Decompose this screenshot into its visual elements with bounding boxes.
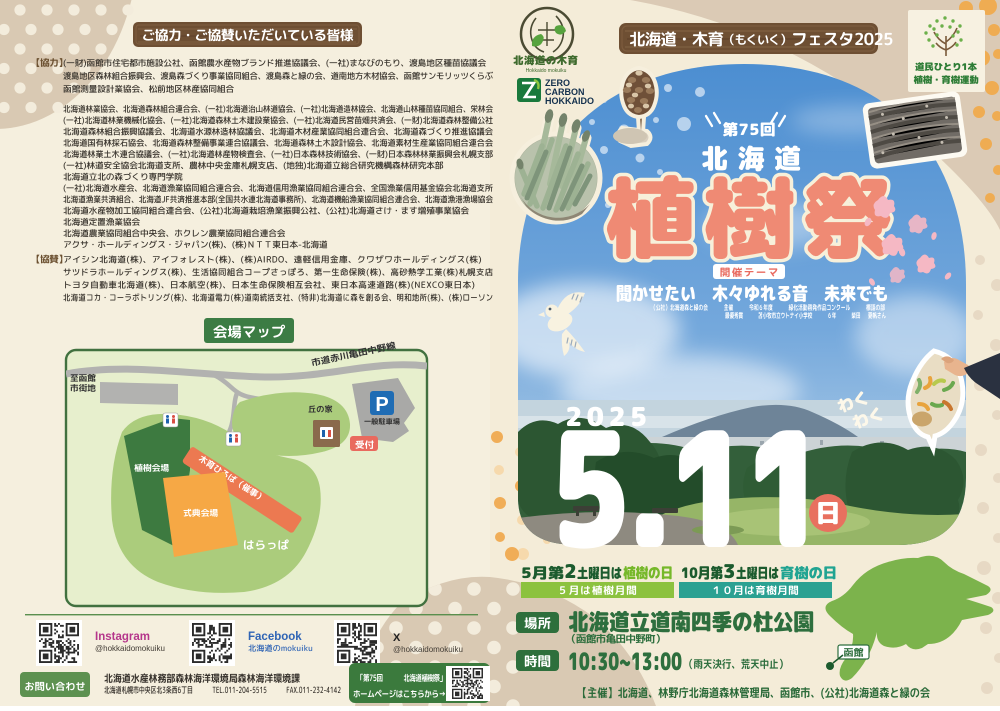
svg-text:Instagram: Instagram [95, 631, 150, 643]
svg-text:X: X [393, 632, 401, 644]
svg-text:HOKKAIDO: HOKKAIDO [545, 96, 594, 106]
svg-text:Facebook: Facebook [248, 631, 302, 643]
svg-text:@hokkaidomokuiku: @hokkaidomokuiku [393, 645, 463, 654]
svg-text:P: P [375, 394, 388, 416]
svg-text:Hokkaido mokuiku: Hokkaido mokuiku [526, 68, 567, 74]
svg-text:@hokkaidomokuiku: @hokkaidomokuiku [95, 644, 165, 653]
